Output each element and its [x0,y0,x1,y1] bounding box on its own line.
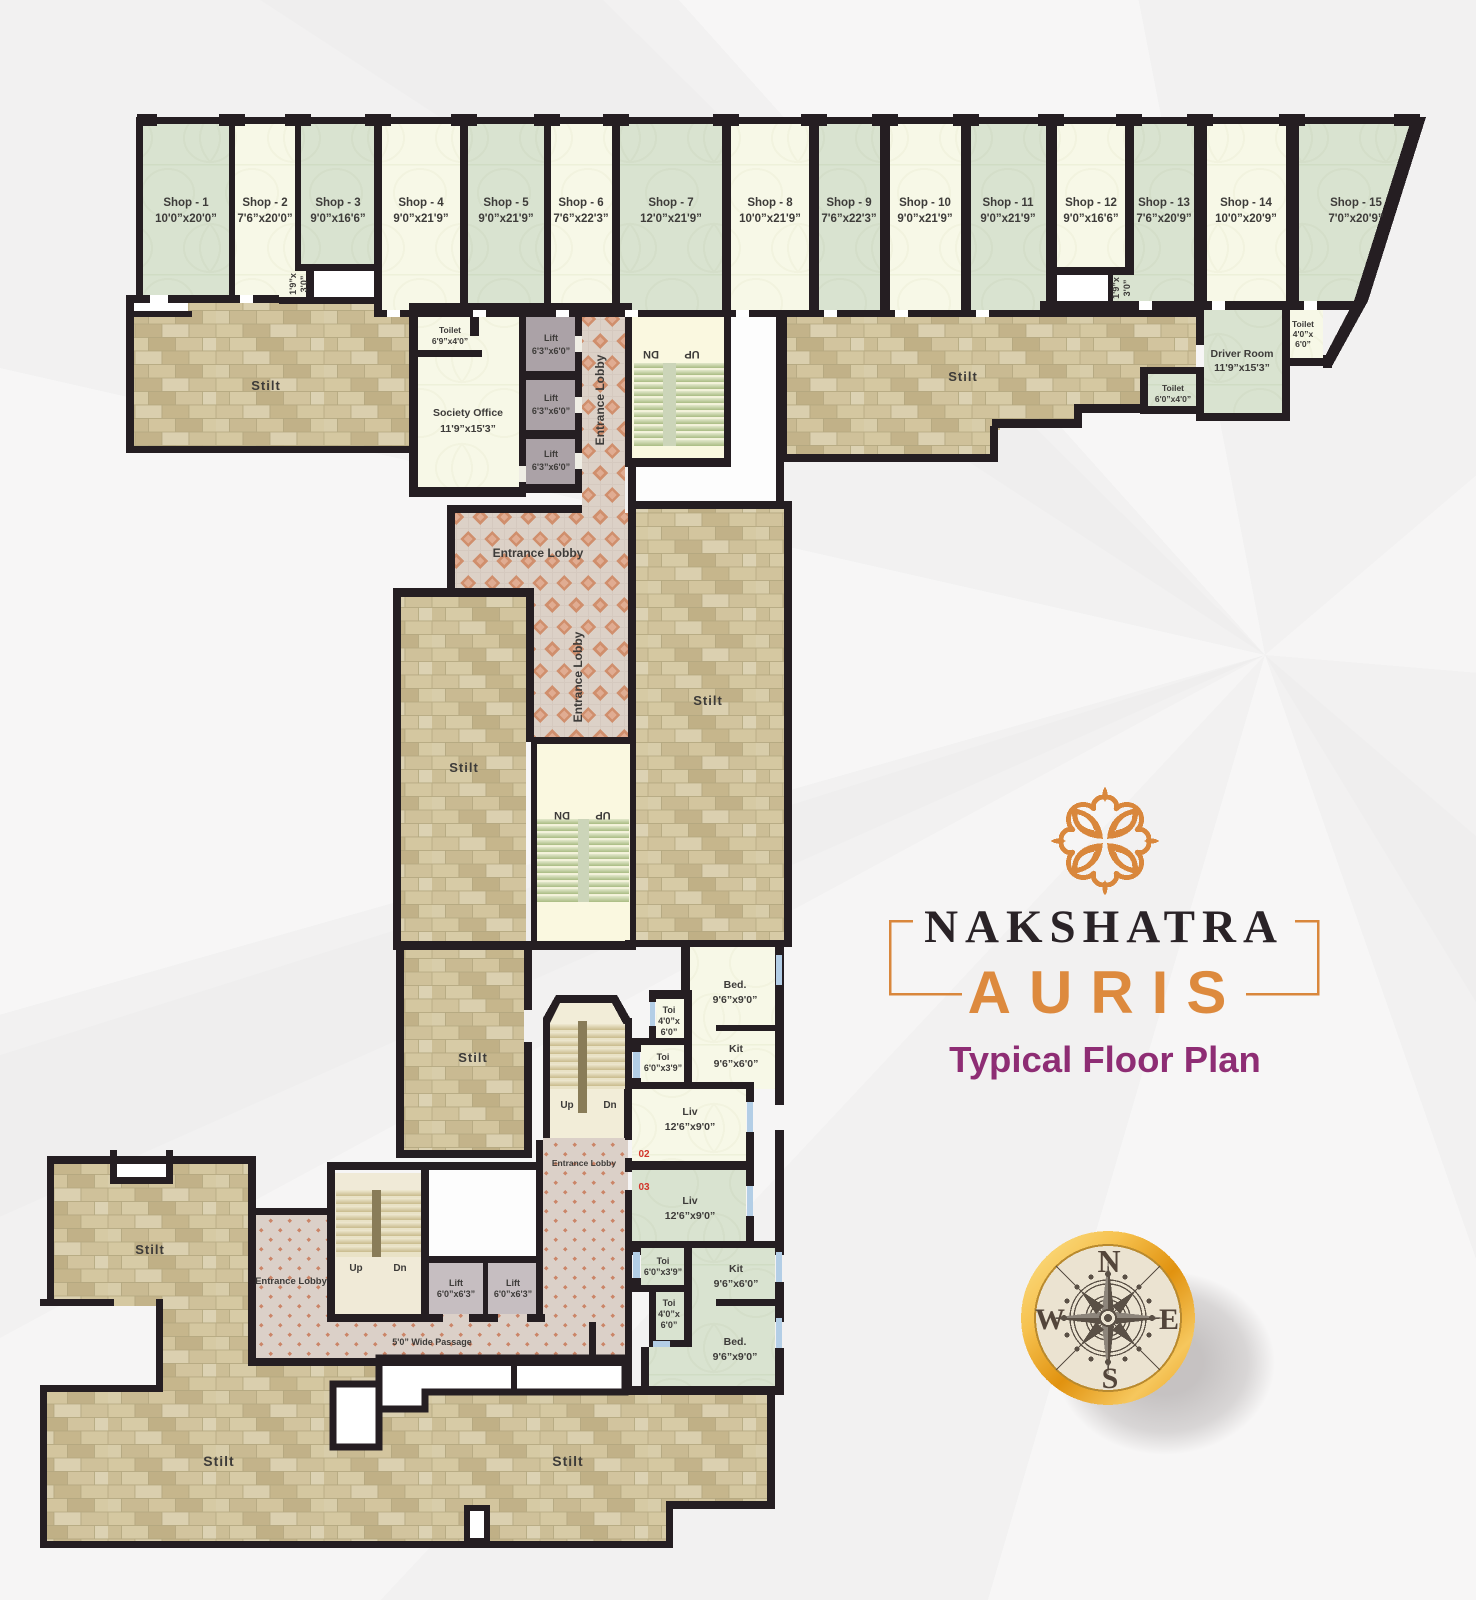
svg-text:6'0”: 6'0” [1295,339,1311,349]
svg-text:Stilt: Stilt [948,369,978,384]
svg-text:03: 03 [638,1182,650,1193]
svg-text:6'3”x6'0”: 6'3”x6'0” [532,462,570,472]
svg-text:Shop - 5: Shop - 5 [483,197,529,209]
svg-text:9'6”x6'0”: 9'6”x6'0” [714,1058,759,1070]
svg-text:Shop - 12: Shop - 12 [1065,197,1117,209]
svg-text:Entrance Lobby: Entrance Lobby [552,1158,617,1168]
svg-text:6'0”x6'3”: 6'0”x6'3” [437,1289,475,1299]
svg-text:10'0”x20'9”: 10'0”x20'9” [1215,213,1277,225]
svg-text:Shop - 3: Shop - 3 [315,197,360,209]
svg-text:10'0”x21'9”: 10'0”x21'9” [739,213,801,225]
svg-text:Society Office: Society Office [433,407,503,419]
svg-text:UP: UP [684,348,699,360]
svg-text:9'0”x16'6”: 9'0”x16'6” [310,213,365,225]
svg-text:10'0”x20'0”: 10'0”x20'0” [155,213,217,225]
svg-text:7'6”x22'3”: 7'6”x22'3” [553,213,608,225]
svg-text:Shop - 13: Shop - 13 [1138,197,1190,209]
svg-text:Dn: Dn [393,1263,406,1274]
svg-text:6'3”x6'0”: 6'3”x6'0” [532,406,570,416]
svg-text:W: W [1035,1303,1065,1336]
svg-text:4'0”x: 4'0”x [1293,329,1314,339]
svg-text:6'0”x3'9”: 6'0”x3'9” [644,1267,682,1277]
svg-text:9'0”x21'9”: 9'0”x21'9” [478,213,533,225]
svg-text:Toilet: Toilet [1162,383,1184,393]
svg-text:N: N [1097,1243,1120,1279]
svg-text:9'0”x16'6”: 9'0”x16'6” [1063,213,1118,225]
svg-text:Stilt: Stilt [458,1050,488,1065]
svg-text:Lift: Lift [544,333,558,343]
svg-text:1'9”x: 1'9”x [288,273,298,295]
svg-text:Toi: Toi [663,1005,676,1015]
svg-text:12'6”x9'0”: 12'6”x9'0” [665,1210,716,1222]
svg-text:Shop - 8: Shop - 8 [747,197,793,209]
svg-text:E: E [1159,1303,1179,1336]
svg-text:7'6”x20'9”: 7'6”x20'9” [1136,213,1191,225]
svg-text:9'0”x21'9”: 9'0”x21'9” [980,213,1035,225]
svg-text:9'0”x21'9”: 9'0”x21'9” [393,213,448,225]
svg-text:9'6”x9'0”: 9'6”x9'0” [713,994,758,1006]
svg-text:Liv: Liv [682,1195,697,1207]
svg-text:3'0”: 3'0” [1122,280,1132,297]
svg-text:Lift: Lift [544,449,558,459]
svg-text:Up: Up [560,1100,573,1111]
svg-text:Up: Up [349,1263,362,1274]
svg-text:Entrance Lobby: Entrance Lobby [593,354,607,445]
svg-text:3'0”: 3'0” [299,276,309,293]
svg-text:Stilt: Stilt [552,1453,583,1469]
svg-text:Toi: Toi [657,1052,670,1062]
svg-text:12'6”x9'0”: 12'6”x9'0” [665,1121,716,1133]
svg-text:4'0”x: 4'0”x [658,1309,680,1319]
svg-text:6'0”x4'0”: 6'0”x4'0” [1155,394,1191,404]
svg-text:Shop - 2: Shop - 2 [242,197,287,209]
svg-text:Entrance Lobby: Entrance Lobby [493,546,584,560]
svg-text:9'0”x21'9”: 9'0”x21'9” [897,213,952,225]
svg-text:AURIS: AURIS [968,959,1245,1026]
svg-text:9'6”x9'0”: 9'6”x9'0” [713,1351,758,1363]
svg-text:11'9”x15'3”: 11'9”x15'3” [440,423,496,435]
svg-text:Entrance Lobby: Entrance Lobby [255,1276,328,1287]
svg-text:Shop - 7: Shop - 7 [648,197,693,209]
svg-text:12'0”x21'9”: 12'0”x21'9” [640,213,702,225]
svg-text:Liv: Liv [682,1106,697,1118]
svg-text:1'9”x: 1'9”x [1111,277,1121,299]
svg-text:Driver Room: Driver Room [1210,348,1273,360]
svg-text:Shop - 11: Shop - 11 [982,197,1034,209]
svg-text:Typical Floor Plan: Typical Floor Plan [949,1039,1261,1080]
svg-text:02: 02 [638,1149,650,1160]
svg-text:Stilt: Stilt [693,693,723,708]
svg-text:NAKSHATRA: NAKSHATRA [924,901,1284,953]
svg-text:Lift: Lift [544,393,558,403]
svg-text:6'9”x4'0”: 6'9”x4'0” [432,336,468,346]
svg-text:Stilt: Stilt [203,1453,234,1469]
svg-text:S: S [1102,1362,1119,1395]
svg-text:4'0”x: 4'0”x [658,1016,680,1026]
svg-text:Shop - 1: Shop - 1 [163,197,209,209]
svg-text:6'0”x3'9”: 6'0”x3'9” [644,1063,682,1073]
svg-text:Shop - 14: Shop - 14 [1220,197,1272,209]
svg-text:DN: DN [554,809,570,821]
svg-text:Kit: Kit [729,1043,744,1055]
svg-text:6'0”: 6'0” [661,1320,678,1330]
svg-text:Shop - 4: Shop - 4 [398,197,444,209]
svg-text:Shop - 6: Shop - 6 [558,197,603,209]
svg-text:Stilt: Stilt [449,760,479,775]
svg-text:UP: UP [595,809,610,821]
svg-text:Shop - 10: Shop - 10 [899,197,951,209]
svg-text:Lift: Lift [506,1278,520,1288]
svg-text:Toi: Toi [663,1298,676,1308]
svg-text:Stilt: Stilt [135,1242,165,1257]
svg-text:6'0”: 6'0” [661,1027,678,1037]
svg-text:Entrance Lobby: Entrance Lobby [571,631,585,722]
svg-text:Dn: Dn [603,1100,616,1111]
svg-text:Shop - 15: Shop - 15 [1330,197,1382,209]
svg-text:6'3”x6'0”: 6'3”x6'0” [532,346,570,356]
svg-text:Shop - 9: Shop - 9 [826,197,871,209]
svg-text:7'6”x20'0”: 7'6”x20'0” [237,213,292,225]
svg-text:Toilet: Toilet [1292,319,1314,329]
svg-text:Toilet: Toilet [439,325,461,335]
svg-text:DN: DN [643,348,659,360]
svg-text:9'6”x6'0”: 9'6”x6'0” [714,1278,759,1290]
svg-text:Stilt: Stilt [251,378,281,393]
svg-text:7'0”x20'9”: 7'0”x20'9” [1328,213,1383,225]
svg-text:Bed.: Bed. [724,1336,747,1348]
svg-text:5'0” Wide Passage: 5'0” Wide Passage [392,1337,472,1347]
svg-text:11'9”x15'3”: 11'9”x15'3” [1214,362,1270,374]
svg-text:6'0”x6'3”: 6'0”x6'3” [494,1289,532,1299]
svg-text:Toi: Toi [657,1256,670,1266]
svg-text:7'6”x22'3”: 7'6”x22'3” [821,213,876,225]
svg-text:Lift: Lift [449,1278,463,1288]
svg-text:Bed.: Bed. [724,979,747,991]
svg-text:Kit: Kit [729,1263,744,1275]
